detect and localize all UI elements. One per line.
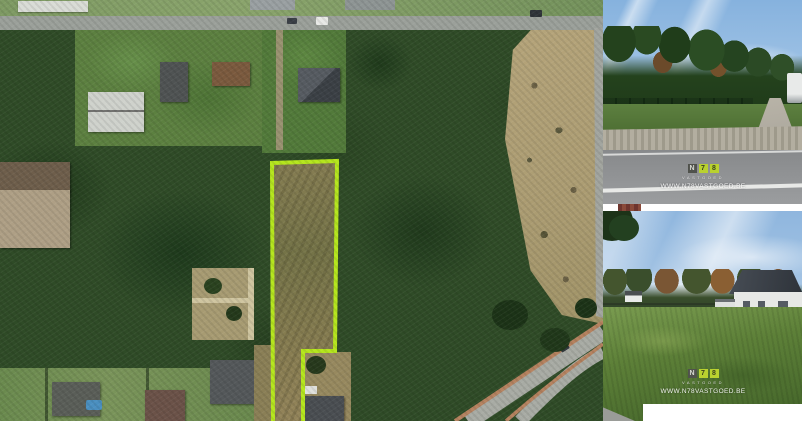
photo-street-view: N 7 8 VASTGOED WWW.N78VASTGOED.BE: [603, 0, 802, 204]
logo-block-7: 7: [699, 164, 708, 173]
property-collage: N 7 8 VASTGOED WWW.N78VASTGOED.BE: [0, 0, 802, 421]
logo-block-8: 8: [710, 164, 719, 173]
watermark: N 7 8 VASTGOED WWW.N78VASTGOED.BE: [643, 369, 763, 395]
logo-block-8: 8: [710, 369, 719, 378]
parcel-outline-layer: [0, 0, 603, 421]
logo-block-7: 7: [699, 369, 708, 378]
satellite-map: [0, 0, 603, 421]
fence: [603, 303, 731, 305]
logo-block-n: N: [688, 369, 697, 378]
tree: [609, 215, 639, 241]
watermark-tagline: VASTGOED: [682, 175, 724, 180]
distant-cottage: [625, 291, 642, 302]
n78-logo: N 7 8: [688, 164, 719, 173]
watermark: N 7 8 VASTGOED WWW.N78VASTGOED.BE: [643, 164, 763, 190]
n78-logo: N 7 8: [688, 369, 719, 378]
logo-block-n: N: [688, 164, 697, 173]
white-corner: [643, 404, 802, 421]
photo-divider: [603, 204, 802, 211]
parcel-outline: [272, 161, 337, 421]
photo-field-view: N 7 8 VASTGOED WWW.N78VASTGOED.BE: [603, 211, 802, 421]
brick-fragment: [618, 204, 641, 211]
watermark-url: WWW.N78VASTGOED.BE: [660, 388, 745, 395]
watermark-url: WWW.N78VASTGOED.BE: [660, 183, 745, 190]
white-vehicle: [787, 73, 802, 103]
watermark-tagline: VASTGOED: [682, 380, 724, 385]
